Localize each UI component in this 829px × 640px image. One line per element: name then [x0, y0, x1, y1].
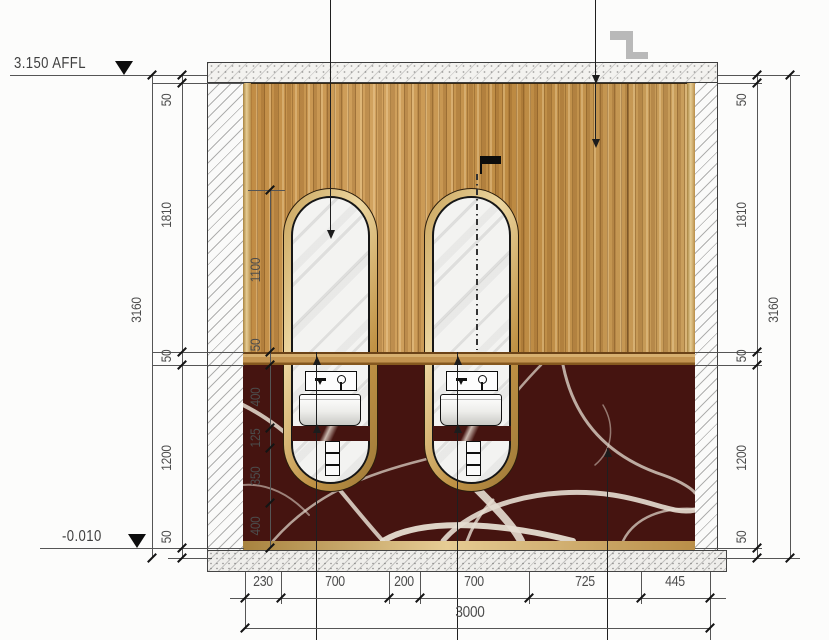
ceiling-slab-hatch — [207, 62, 718, 83]
right-basin-shelf — [433, 426, 511, 441]
floor-slab-hatch — [207, 550, 727, 572]
ext-line — [710, 572, 711, 640]
flag-stem — [480, 156, 482, 174]
dim-label: 400 — [247, 516, 263, 535]
dim-label: 700 — [464, 574, 484, 590]
dim-label: 50 — [158, 350, 174, 363]
ext-line — [695, 365, 762, 366]
dim-label: 125 — [247, 428, 263, 447]
gray-step-symbol-icon — [610, 31, 633, 40]
gold-base-trim — [243, 541, 695, 550]
dim-label: 50 — [733, 350, 749, 363]
faucet-handle-icon — [337, 375, 346, 384]
dim-line-left-inner — [182, 75, 183, 558]
ext-line — [152, 83, 244, 84]
left-drain-pipe — [325, 441, 340, 476]
elevation-drawing: 3.150 AFFL -0.010 3160 50 1810 50 1200 5… — [0, 0, 829, 640]
dim-line-mirror — [270, 190, 271, 548]
right-wall-hatch — [695, 83, 718, 550]
ext-line — [152, 365, 244, 366]
dim-label: 700 — [325, 574, 345, 590]
dim-label: 3000 — [455, 604, 484, 622]
dim-label: 1810 — [158, 202, 174, 227]
dim-label: 50 — [733, 531, 749, 544]
dim-label: 50 — [158, 531, 174, 544]
right-mirror-centerline — [476, 174, 478, 350]
dim-line-right-inner — [757, 75, 758, 558]
dim-label: 50 — [733, 94, 749, 107]
right-basin-leader — [457, 352, 458, 640]
gray-step-symbol-icon — [626, 52, 648, 59]
right-wash-basin — [440, 394, 502, 426]
dim-label: 50 — [247, 339, 263, 352]
ext-line — [245, 572, 246, 628]
dim-label: 350 — [247, 466, 263, 485]
arrow-down-icon — [327, 230, 335, 239]
wood-panel-leader — [595, 0, 596, 140]
dim-line-left-outer — [152, 75, 153, 558]
dim-label: 1100 — [247, 258, 263, 283]
filled-triangle-down-icon — [115, 61, 133, 75]
arrow-up-icon — [454, 424, 462, 433]
dim-label: 50 — [158, 94, 174, 107]
dim-label: 230 — [253, 574, 273, 590]
level-label-bottom: -0.010 — [62, 528, 102, 546]
level-label-top: 3.150 AFFL — [14, 55, 86, 73]
dim-label: 3160 — [765, 297, 781, 322]
dim-label: 725 — [575, 574, 595, 590]
faucet-handle-icon — [478, 375, 487, 384]
level-line-top — [10, 75, 207, 76]
dim-label: 400 — [247, 387, 263, 406]
counter-shelf — [243, 352, 695, 365]
left-mirror-centerline — [330, 0, 331, 231]
filled-triangle-down-icon — [128, 534, 146, 548]
arrow-up-icon — [454, 356, 462, 365]
dim-label: 1810 — [733, 202, 749, 227]
left-faucet-panel — [305, 371, 357, 391]
black-flag-icon — [480, 156, 501, 164]
left-basin-shelf — [292, 426, 370, 441]
arrow-down-icon — [592, 75, 600, 84]
gray-step-symbol-icon — [626, 40, 633, 52]
right-drain-pipe — [466, 441, 481, 476]
arrow-up-icon — [313, 356, 321, 365]
dim-label: 200 — [394, 574, 414, 590]
dim-line-right-outer — [790, 75, 791, 558]
wood-panel-joint — [627, 83, 628, 353]
gold-trim-right — [687, 83, 695, 353]
dim-line-bottom-overall — [245, 628, 710, 629]
left-wall-hatch — [207, 83, 243, 550]
dim-label: 1200 — [733, 445, 749, 470]
dim-label: 3160 — [128, 297, 144, 322]
dim-label: 445 — [665, 574, 685, 590]
dim-line-bottom-chain — [230, 598, 726, 599]
ext-line — [695, 352, 762, 353]
arrow-up-icon — [604, 448, 612, 457]
left-wash-basin — [299, 394, 361, 426]
left-basin-leader — [316, 352, 317, 640]
dim-label: 1200 — [158, 445, 174, 470]
ext-line — [695, 548, 762, 549]
arrow-down-icon — [592, 139, 600, 148]
right-faucet-panel — [446, 371, 498, 391]
marble-leader — [607, 448, 608, 640]
gold-trim-left — [243, 83, 251, 353]
arrow-up-icon — [313, 424, 321, 433]
ext-line — [152, 548, 244, 549]
ext-line — [168, 558, 212, 559]
